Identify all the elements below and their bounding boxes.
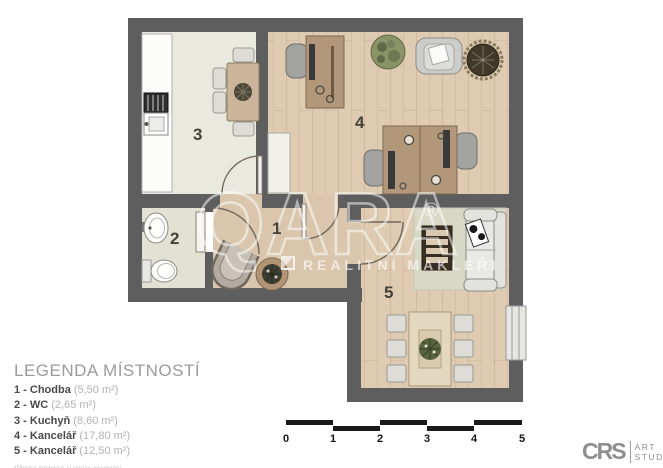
meeting-chair xyxy=(454,365,473,382)
desk-accessory xyxy=(331,46,334,98)
studio-logo: CRS ART STUDIO xyxy=(582,438,663,465)
door-opening-room5 xyxy=(347,222,361,264)
studio-logo-initials: CRS xyxy=(582,438,625,465)
legend-item-4: 4 - Kancelář(17,80 m²) xyxy=(14,430,200,442)
meeting-table xyxy=(387,312,473,386)
scale-label-2: 2 xyxy=(377,433,383,445)
door-leaf-kitchen xyxy=(258,156,262,194)
window xyxy=(506,306,526,360)
armchair xyxy=(416,38,462,74)
scale-label-1: 1 xyxy=(330,433,336,445)
toilet xyxy=(142,260,177,282)
room-label-3: 3 xyxy=(193,125,202,145)
scale-segment xyxy=(380,420,427,425)
legend-title: LEGENDA MÍSTNOSTÍ xyxy=(14,361,200,381)
monitor xyxy=(388,151,395,189)
studio-logo-text: ART STUDIO xyxy=(635,442,663,462)
meeting-chair xyxy=(387,365,406,382)
studio-logo-line1: ART xyxy=(635,442,663,452)
meeting-chair xyxy=(387,340,406,357)
legend: LEGENDA MÍSTNOSTÍ 1 - Chodba(5,50 m²) 2 … xyxy=(14,361,200,468)
sofa xyxy=(464,209,506,291)
legend-item-3: 3 - Kuchyň(8,60 m²) xyxy=(14,415,200,427)
legend-item-5: 5 - Kancelář(12,50 m²) xyxy=(14,445,200,457)
pillow xyxy=(428,44,449,65)
meeting-chair xyxy=(454,340,473,357)
legend-item-area: (5,50 m²) xyxy=(74,384,119,396)
legend-item-label: 5 - Kancelář xyxy=(14,445,76,457)
door-leaf-wc xyxy=(196,212,205,252)
scale-segment xyxy=(286,420,333,425)
legend-item-label: 3 - Kuchyň xyxy=(14,415,70,427)
legend-item-label: 2 - WC xyxy=(14,399,48,411)
room-label-1: 1 xyxy=(272,219,281,239)
scale-bar: 0 1 2 3 4 5 xyxy=(286,420,522,448)
scale-segment xyxy=(427,426,474,431)
floorplan-page: QARA ® REALITNÍ MAKLÉŘI 1 2 3 4 5 LEGEND… xyxy=(0,0,663,468)
plant xyxy=(371,35,405,69)
dining-chair xyxy=(233,48,254,62)
office-chair xyxy=(455,133,477,169)
monitor xyxy=(309,44,315,80)
meeting-chair xyxy=(454,315,473,332)
meeting-chair xyxy=(387,315,406,332)
scale-segment xyxy=(333,426,380,431)
scale-segment xyxy=(474,420,522,425)
door-leaf-office4 xyxy=(302,204,306,239)
room-label-5: 5 xyxy=(384,283,393,303)
shelf-cabinet xyxy=(422,226,452,270)
cabinet xyxy=(268,133,290,193)
dining-chair xyxy=(213,68,226,89)
scale-label-3: 3 xyxy=(424,433,430,445)
room-label-4: 4 xyxy=(355,113,364,133)
logo-divider xyxy=(630,441,631,463)
room-label-2: 2 xyxy=(170,229,179,249)
legend-item-1: 1 - Chodba(5,50 m²) xyxy=(14,384,200,396)
potted-plant xyxy=(256,258,288,290)
legend-item-area: (8,60 m²) xyxy=(73,415,118,427)
scale-label-0: 0 xyxy=(283,433,289,445)
legend-item-label: 1 - Chodba xyxy=(14,384,71,396)
kitchen-counter xyxy=(142,34,172,192)
legend-item-label: 4 - Kancelář xyxy=(14,430,76,442)
legend-item-2: 2 - WC(2,65 m²) xyxy=(14,399,200,411)
legend-item-area: (12,50 m²) xyxy=(79,445,130,457)
dining-chair xyxy=(213,92,226,113)
faucet xyxy=(145,122,149,126)
scale-label-5: 5 xyxy=(519,433,525,445)
dining-chair xyxy=(233,122,254,136)
office-chair xyxy=(286,44,308,78)
legend-item-area: (17,80 m²) xyxy=(79,430,130,442)
scale-label-4: 4 xyxy=(471,433,477,445)
door-opening-room4 xyxy=(303,194,338,208)
door-opening-room3 xyxy=(220,194,262,208)
legend-item-area: (2,65 m²) xyxy=(51,399,96,411)
studio-logo-line2: STUDIO xyxy=(635,452,663,462)
